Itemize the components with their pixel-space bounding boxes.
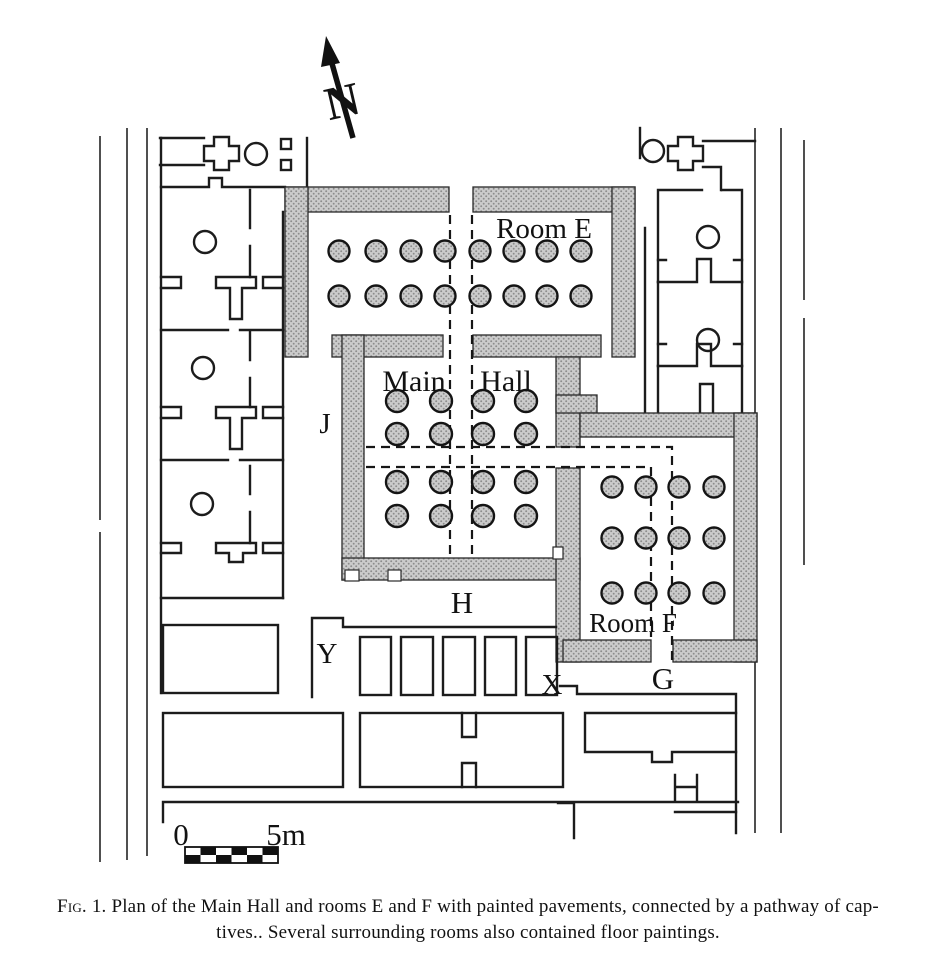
caption-line1-text: Plan of the Main Hall and rooms E and F … xyxy=(111,896,879,917)
left-corridor-column xyxy=(245,143,267,165)
left-bottom-room xyxy=(163,625,278,693)
southeast-partitions xyxy=(675,775,736,812)
right-entry-walls xyxy=(703,141,755,190)
figure-caption: Fig. 1. Plan of the Main Hall and rooms … xyxy=(8,894,928,946)
room-e-top-wall-east xyxy=(473,187,635,212)
magazine-cell xyxy=(360,637,391,695)
room-e-east-wall xyxy=(612,187,635,357)
right-room1-door-piers xyxy=(658,259,742,282)
left-divider1 xyxy=(161,277,283,330)
caption-line2: tives.. Several surrounding rooms also c… xyxy=(8,920,928,946)
figure-number: Fig. 1. xyxy=(57,896,106,917)
right-room2-walls xyxy=(658,282,742,366)
right-cross-pier xyxy=(668,137,703,170)
south-room-east xyxy=(585,713,736,762)
south-room-west xyxy=(163,713,343,787)
left-cross-pier xyxy=(204,137,239,170)
caption-line1: Fig. 1. Plan of the Main Hall and rooms … xyxy=(8,894,928,920)
main-label: Main xyxy=(382,365,445,398)
left-entry-walls xyxy=(160,138,204,165)
left-divider2 xyxy=(161,407,283,460)
room-e-west-wall xyxy=(285,187,308,357)
right-room2-column xyxy=(697,329,719,351)
hall-label: Hall xyxy=(480,365,532,398)
main-hall-columns xyxy=(386,390,537,527)
south-room-door-jambs xyxy=(462,713,476,787)
room-e-top-wall-west xyxy=(285,187,449,212)
room-f-bottom-wall-east xyxy=(673,640,757,662)
left-room3-column xyxy=(191,493,213,515)
main-hall-door-notch-a xyxy=(345,570,359,581)
north-arrow-head xyxy=(321,36,340,67)
north-label: N xyxy=(320,73,365,131)
doorway-g-label: G xyxy=(652,661,674,696)
corridor-j-label: J xyxy=(319,408,330,440)
magazine-cell xyxy=(485,637,516,695)
north-arrow: N xyxy=(320,36,365,138)
left-divider3 xyxy=(161,543,283,598)
left-room1-column xyxy=(194,231,216,253)
main-hall-door-notch-b xyxy=(388,570,401,581)
corridor-h-label: H xyxy=(451,585,473,620)
scale-bar: 0 5m xyxy=(173,817,306,863)
doorway-x-label: X xyxy=(542,669,563,701)
room-f-wall-notch xyxy=(553,547,563,559)
magazine-cell xyxy=(443,637,475,695)
magazine-cell xyxy=(401,637,433,695)
main-hall-bottom-wall xyxy=(342,558,580,580)
left-jamb-a xyxy=(281,139,291,149)
right-rooms xyxy=(640,128,755,412)
south-boundary-wall xyxy=(163,802,738,822)
south-wall-stub xyxy=(558,803,574,838)
room-f-label: Room F xyxy=(589,608,677,638)
right-room3-walls xyxy=(658,366,742,412)
room-e-bottom-wall-east xyxy=(473,335,601,357)
room-e-columns xyxy=(329,241,592,307)
left-jamb-b xyxy=(281,160,291,170)
room-f-east-wall xyxy=(734,413,757,662)
right-corridor-column xyxy=(642,140,664,162)
plan-drawing: N xyxy=(0,0,936,888)
left-room2-column xyxy=(192,357,214,379)
room-f-bottom-wall-west xyxy=(563,640,651,662)
corridor-y-label: Y xyxy=(317,638,338,670)
figure-plate: N xyxy=(0,0,936,960)
scale-bar-checker xyxy=(185,847,278,863)
room-f-top-wall xyxy=(580,413,757,437)
left-room1-top-wall xyxy=(161,178,285,187)
right-room1-column xyxy=(697,226,719,248)
main-hall-west-wall xyxy=(342,335,364,580)
wall-junction-pier xyxy=(556,395,597,413)
room-e-label: Room E xyxy=(496,213,592,245)
main-hall-east-wall-lower xyxy=(556,468,580,662)
room-f-columns xyxy=(602,477,725,604)
south-structures xyxy=(163,618,738,838)
